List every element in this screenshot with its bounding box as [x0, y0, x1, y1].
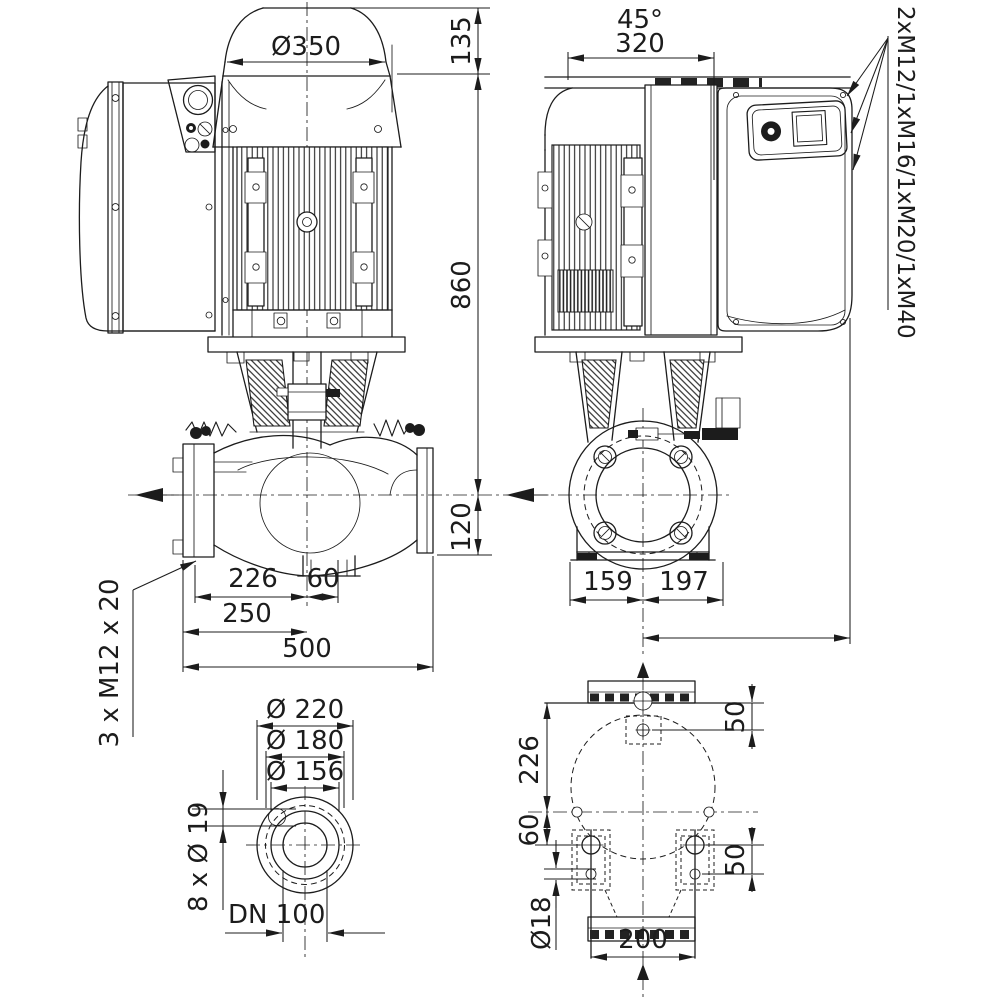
dim-top-bolt-offset: 50 — [721, 700, 751, 733]
dim-foot-bolt-offset: 50 — [721, 843, 751, 876]
motor-pad — [538, 240, 552, 276]
dim-bolt-spacing: 200 — [618, 925, 668, 955]
note-cable-glands: 2xM12/1xM16/1xM20/1xM40 — [892, 6, 918, 339]
side-panel — [645, 85, 717, 335]
dim-bolt-circle: Ø 180 — [266, 726, 344, 756]
pump-dimension-drawing-canvas: Ø350 135 860 120 226 60 250 500 3 x M12 … — [0, 0, 1000, 1000]
technical-drawing-page: Ø350 135 860 120 226 60 250 500 3 x M12 … — [0, 0, 1000, 1000]
cable-gland — [201, 140, 210, 149]
motor-body — [233, 147, 392, 337]
dim-outer-diameter: Ø 220 — [266, 695, 344, 725]
motor-pad — [538, 172, 552, 208]
dim-half-port: 250 — [222, 599, 272, 629]
casing-hole — [704, 807, 714, 817]
dim-port-length: 500 — [282, 634, 332, 664]
motor-body-rotated — [538, 145, 643, 335]
dim-suction-to-axis: 226 — [228, 564, 278, 594]
dim-axis-to-foot: 60 — [515, 813, 545, 846]
dim-nominal-bore: DN 100 — [228, 900, 325, 930]
dim-bolt-holes: 8 x Ø 19 — [184, 802, 214, 912]
volute-face — [569, 421, 717, 569]
coupling — [288, 384, 326, 420]
dim-top-height: 135 — [447, 16, 477, 66]
dim-width: 320 — [615, 29, 665, 59]
dim-foot-right: 197 — [659, 567, 709, 597]
dim-axis-offset: 60 — [306, 564, 339, 594]
dim-fan-diameter: Ø350 — [271, 32, 341, 62]
sensor-connector — [702, 428, 738, 440]
dim-hole-diameter: Ø18 — [527, 896, 557, 950]
foot-hatch — [577, 553, 597, 560]
sensor-bracket — [716, 398, 740, 428]
casing-hole — [572, 807, 582, 817]
dim-axis-height: 120 — [447, 502, 477, 552]
dim-flange-to-axis: 226 — [515, 735, 545, 785]
motor-drain-plug — [297, 212, 317, 232]
note-anchor-bolts: 3 x M12 x 20 — [95, 579, 125, 748]
coupling-bolt — [326, 389, 340, 397]
foot-hatch — [689, 553, 709, 560]
dim-raised-face: Ø 156 — [266, 757, 344, 787]
dim-foot-left: 159 — [583, 567, 633, 597]
dim-total-height: 860 — [447, 260, 477, 310]
